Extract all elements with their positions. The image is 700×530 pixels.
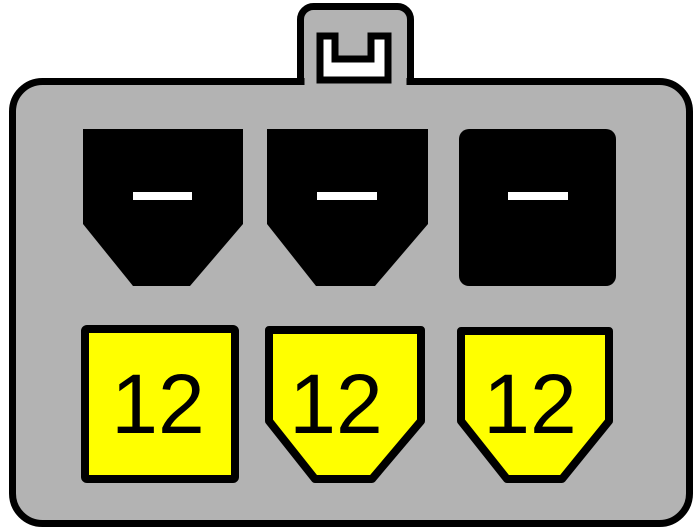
ground-dash-mark-1 (133, 192, 192, 200)
connector-diagram-canvas: 12 12 12 (0, 0, 700, 530)
power-pin-label-1: 12 (111, 357, 204, 451)
ground-pin-3 (459, 129, 616, 286)
power-pin-label-3: 12 (483, 357, 576, 451)
ground-dash-mark-2 (317, 192, 377, 200)
power-pin-label-2: 12 (289, 357, 382, 451)
ground-dash-mark-3 (508, 192, 568, 200)
power-connector-diagram: 12 12 12 (0, 0, 700, 530)
